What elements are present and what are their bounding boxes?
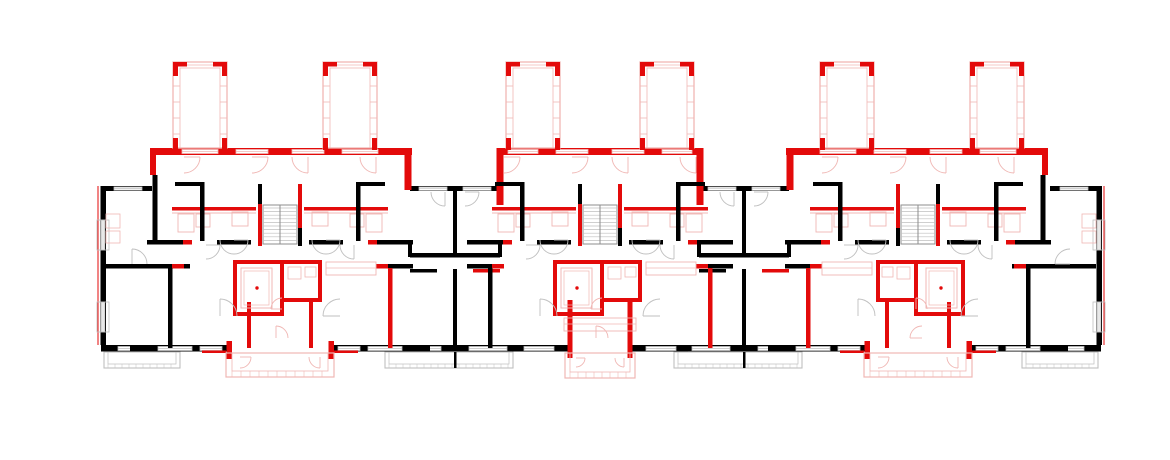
wall <box>226 341 232 359</box>
door-swing <box>431 192 445 206</box>
fixture-outline <box>1026 352 1094 364</box>
wall <box>172 207 256 211</box>
door-swing <box>998 157 1014 173</box>
wall <box>454 352 457 368</box>
fixture-outline <box>970 62 1024 148</box>
wall <box>323 138 328 150</box>
fixture-outline <box>827 68 867 148</box>
wall <box>699 269 726 273</box>
wall <box>506 62 511 76</box>
wall <box>372 62 377 76</box>
door-swing <box>822 157 838 173</box>
wall <box>787 148 794 190</box>
fixture-outline <box>625 267 636 277</box>
wall <box>838 182 843 241</box>
fixture-outline <box>564 318 636 331</box>
wall <box>785 240 821 245</box>
fixture-outline <box>647 68 687 148</box>
fixture-outline <box>977 68 1017 148</box>
wall <box>696 264 708 269</box>
wall <box>168 268 173 348</box>
group-tower <box>173 62 227 150</box>
door-swing <box>858 299 875 316</box>
wall <box>309 302 313 348</box>
wall <box>806 268 811 348</box>
fixture-outline <box>882 267 893 277</box>
wall <box>388 268 393 348</box>
door-swing <box>844 245 858 259</box>
door-swing <box>947 357 958 368</box>
wall <box>629 240 663 245</box>
fixture-outline <box>608 267 621 279</box>
wall <box>495 182 522 186</box>
wall <box>864 341 870 359</box>
wall <box>618 228 622 246</box>
wall <box>689 62 694 76</box>
wall <box>699 253 789 258</box>
fixture-outline <box>104 352 180 368</box>
door-swing <box>910 326 922 338</box>
wall <box>813 182 840 186</box>
wall <box>628 300 633 358</box>
fixture-outline <box>870 353 966 371</box>
fixture-outline <box>173 62 227 148</box>
fixture-outline <box>106 231 120 243</box>
wall <box>173 62 178 76</box>
wall <box>410 269 437 273</box>
door-swing <box>526 245 540 259</box>
wall <box>942 207 1026 211</box>
wall <box>676 182 681 241</box>
wall <box>640 138 645 150</box>
wall <box>869 138 874 150</box>
door-swing <box>930 157 946 173</box>
wall <box>640 62 645 76</box>
wall <box>936 184 940 204</box>
door-swing <box>206 245 220 259</box>
wall <box>368 240 377 245</box>
door-swing <box>660 245 674 259</box>
fixture-outline <box>498 214 514 232</box>
wall <box>742 186 746 257</box>
fixture-outline <box>552 212 568 226</box>
wall <box>742 269 746 348</box>
wall <box>358 182 385 186</box>
door-swing <box>596 326 608 338</box>
door-swing <box>465 192 479 206</box>
wall <box>172 264 184 269</box>
door-swing <box>643 299 660 316</box>
wall <box>202 351 226 354</box>
wall <box>217 240 251 245</box>
wall <box>578 184 582 204</box>
wall <box>173 138 178 150</box>
wall <box>377 240 413 245</box>
fixture-outline <box>326 262 376 275</box>
fixture-outline <box>330 68 370 148</box>
door-swing <box>615 358 624 367</box>
wall <box>503 240 512 245</box>
group-tower <box>970 62 1024 150</box>
wall <box>568 300 573 358</box>
wall <box>222 62 227 76</box>
wall <box>492 264 504 269</box>
fixture-outline <box>513 68 553 148</box>
group-tower <box>506 62 560 150</box>
door-swing <box>504 157 520 173</box>
door-swing <box>323 299 340 316</box>
fixture-outline <box>570 353 630 372</box>
fixture-outline <box>1082 231 1096 243</box>
fixture-outline <box>686 214 702 232</box>
wall <box>810 207 894 211</box>
wall <box>372 138 377 150</box>
wall <box>147 240 183 245</box>
wall <box>624 207 708 211</box>
wall <box>820 62 825 76</box>
wall <box>947 240 981 245</box>
wall <box>1019 62 1024 76</box>
wall <box>467 240 503 245</box>
fixture-outline <box>678 352 798 364</box>
fixture-outline <box>1082 214 1096 228</box>
fixture-outline <box>180 68 220 148</box>
drain-dot <box>939 286 942 289</box>
wall <box>1042 148 1048 175</box>
wall <box>488 268 493 348</box>
wall <box>328 341 334 359</box>
wall <box>1006 240 1015 245</box>
wall <box>972 351 996 354</box>
door-swing <box>1055 249 1070 264</box>
door-swing <box>878 357 889 368</box>
wall <box>376 264 388 269</box>
wall <box>743 352 746 368</box>
wall <box>688 240 697 245</box>
wall <box>896 228 900 246</box>
door-swing <box>572 157 588 173</box>
door-swing <box>132 249 147 264</box>
wall <box>153 175 158 241</box>
door-swing <box>576 358 585 367</box>
fixture-outline <box>565 353 635 378</box>
wall <box>1014 264 1026 269</box>
wall <box>689 138 694 150</box>
door-swing <box>252 157 268 173</box>
wall <box>697 148 704 205</box>
group-modCore <box>467 157 733 348</box>
fixture-outline <box>305 267 316 277</box>
wall <box>855 240 889 245</box>
wall <box>966 341 972 359</box>
fixture-outline <box>108 352 176 364</box>
fixture-outline <box>312 212 328 226</box>
wall <box>555 62 560 76</box>
wall <box>467 264 492 269</box>
door-swing <box>978 245 992 259</box>
wall <box>821 240 830 245</box>
wall <box>304 207 388 211</box>
wall <box>506 138 511 150</box>
wall <box>147 264 172 269</box>
wall <box>453 269 457 348</box>
wall <box>785 264 810 269</box>
fixture-outline <box>820 62 874 148</box>
wall <box>356 182 361 241</box>
wall <box>762 269 789 273</box>
wall <box>947 302 951 348</box>
door-swing <box>754 192 768 206</box>
fixture-outline <box>323 62 377 148</box>
wall <box>473 269 500 273</box>
fixture-outline <box>822 262 872 275</box>
wall <box>840 351 864 354</box>
door-swing <box>184 157 200 173</box>
fixture-outline <box>646 262 696 275</box>
wall <box>810 264 822 269</box>
fixture-outline <box>106 214 120 228</box>
wall <box>555 138 560 150</box>
group-tower <box>820 62 874 150</box>
fixture-outline <box>389 352 509 364</box>
wall <box>708 268 713 348</box>
group-modCore <box>147 157 413 348</box>
wall <box>150 148 156 175</box>
fixture-outline <box>178 214 194 232</box>
wall <box>537 240 571 245</box>
group-modCore <box>785 157 1051 348</box>
door-swing <box>276 326 288 338</box>
fixture-outline <box>232 212 248 226</box>
wall <box>497 148 504 205</box>
wall <box>200 182 205 241</box>
wall <box>222 138 227 150</box>
wall <box>996 182 1023 186</box>
fixture-outline <box>640 62 694 148</box>
fixture-outline <box>288 267 301 279</box>
floor-plan-canvas <box>0 0 1170 460</box>
wall <box>678 182 705 186</box>
wall <box>697 240 733 245</box>
wall <box>1015 240 1051 245</box>
fixture-outline <box>950 212 966 226</box>
wall <box>405 148 412 190</box>
fixture-outline <box>816 214 832 232</box>
door-swing <box>340 245 354 259</box>
door-swing <box>360 157 376 173</box>
wall <box>885 302 889 348</box>
door-swing <box>292 157 308 173</box>
wall <box>334 351 358 354</box>
door-swing <box>680 157 696 173</box>
wall <box>820 138 825 150</box>
fixture-outline <box>897 267 910 279</box>
wall <box>520 182 525 241</box>
door-swing <box>240 357 251 368</box>
wall <box>970 62 975 76</box>
wall <box>1026 264 1051 269</box>
wall <box>183 240 192 245</box>
floor-plan-svg <box>0 0 1170 460</box>
wall <box>708 264 733 269</box>
wall <box>323 62 328 76</box>
wall <box>410 253 500 258</box>
wall <box>1041 175 1046 241</box>
wall <box>309 240 343 245</box>
fixture-outline <box>506 62 560 148</box>
fixture-outline <box>1022 352 1098 368</box>
door-swing <box>720 192 734 206</box>
fixture-outline <box>870 212 886 226</box>
fixture-outline <box>1004 214 1020 232</box>
fixture-outline <box>232 353 328 371</box>
wall <box>298 228 302 246</box>
wall <box>1019 138 1024 150</box>
wall <box>247 302 251 348</box>
wall <box>175 182 202 186</box>
door-swing <box>890 157 906 173</box>
wall <box>970 138 975 150</box>
fixture-outline <box>366 214 382 232</box>
wall <box>1026 268 1031 348</box>
wall <box>869 62 874 76</box>
wall <box>453 186 457 257</box>
wall <box>492 207 576 211</box>
drain-dot <box>575 286 578 289</box>
drain-dot <box>255 286 258 289</box>
group-tower <box>323 62 377 150</box>
wall <box>994 182 999 241</box>
door-swing <box>612 157 628 173</box>
fixture-outline <box>632 212 648 226</box>
group-tower <box>640 62 694 150</box>
door-swing <box>309 357 320 368</box>
wall <box>388 264 413 269</box>
wall <box>258 184 262 204</box>
